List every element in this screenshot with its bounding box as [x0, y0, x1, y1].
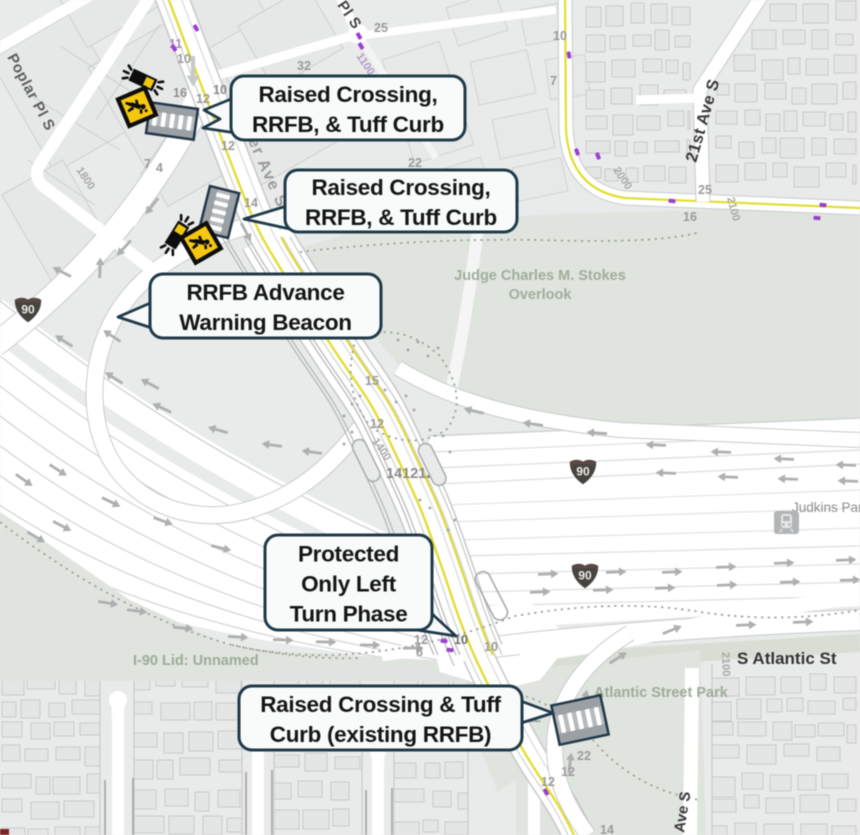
svg-text:Warning Beacon: Warning Beacon: [179, 310, 351, 335]
svg-text:7: 7: [550, 74, 557, 88]
svg-text:90: 90: [576, 465, 590, 479]
svg-text:Raised Crossing,: Raised Crossing,: [258, 82, 437, 107]
svg-text:RRFB, & Tuff Curb: RRFB, & Tuff Curb: [305, 205, 497, 230]
svg-text:10: 10: [177, 52, 191, 66]
svg-text:12: 12: [221, 139, 235, 153]
svg-text:4: 4: [156, 161, 163, 175]
svg-text:RRFB, & Tuff Curb: RRFB, & Tuff Curb: [252, 112, 444, 137]
svg-text:90: 90: [578, 569, 592, 583]
svg-text:Turn Phase: Turn Phase: [290, 602, 408, 627]
svg-text:Judkins Park: Judkins Park: [792, 500, 860, 515]
svg-text:10: 10: [484, 640, 498, 654]
svg-text:12: 12: [561, 765, 575, 779]
svg-text:32: 32: [297, 59, 311, 73]
svg-text:Curb (existing RRFB): Curb (existing RRFB): [270, 722, 492, 747]
svg-text:15: 15: [365, 374, 379, 388]
svg-text:25: 25: [374, 21, 388, 35]
svg-text:Raised Crossing,: Raised Crossing,: [311, 175, 490, 200]
svg-text:I-90 Lid: Unnamed: I-90 Lid: Unnamed: [133, 653, 259, 669]
svg-text:22: 22: [408, 156, 422, 170]
svg-text:7: 7: [144, 157, 151, 171]
svg-text:Overlook: Overlook: [509, 287, 573, 303]
svg-text:14: 14: [244, 196, 258, 210]
svg-text:22: 22: [577, 749, 591, 763]
svg-text:S Atlantic St: S Atlantic St: [737, 649, 837, 668]
svg-text:Protected: Protected: [298, 542, 399, 567]
svg-text:25: 25: [698, 183, 712, 197]
svg-text:8: 8: [416, 645, 423, 659]
svg-text:Judge Charles M. Stokes: Judge Charles M. Stokes: [454, 268, 626, 284]
svg-text:Raised Crossing & Tuff: Raised Crossing & Tuff: [260, 692, 501, 717]
svg-text:14: 14: [600, 823, 614, 835]
svg-text:2100: 2100: [719, 652, 732, 677]
svg-text:Atlantic Street Park: Atlantic Street Park: [594, 685, 729, 701]
svg-text:90: 90: [21, 303, 35, 317]
svg-text:Only Left: Only Left: [301, 572, 397, 597]
svg-text:16: 16: [683, 210, 697, 224]
svg-text:12: 12: [196, 92, 210, 106]
svg-text:16: 16: [173, 86, 187, 100]
svg-text:RRFB Advance: RRFB Advance: [186, 280, 344, 305]
svg-text:12: 12: [541, 775, 555, 789]
svg-text:10: 10: [553, 29, 567, 43]
svg-text:12: 12: [370, 417, 384, 431]
svg-text:10: 10: [213, 83, 227, 97]
